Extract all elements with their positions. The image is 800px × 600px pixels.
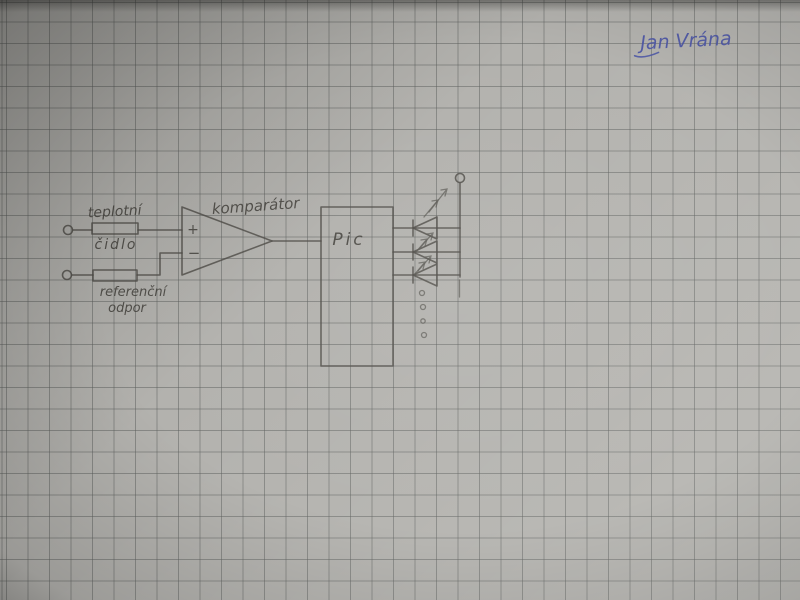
label-referencni: referenční [100, 285, 169, 300]
resistor-temperature-sensor [92, 223, 138, 234]
ellipsis-dot [421, 305, 426, 310]
comparator-plus-sign: + [187, 222, 199, 238]
input-terminal-1 [64, 226, 73, 235]
circuit-sketch: teplotní čidlo referenční odpor komparát… [0, 0, 800, 600]
label-cidlo: čidlo [95, 237, 138, 253]
label-komparator: komparátor [211, 194, 301, 218]
photo-of-graph-paper: teplotní čidlo referenční odpor komparát… [0, 0, 800, 600]
led-1-emission-arrow-b [424, 200, 438, 217]
comparator-minus-sign: − [188, 244, 201, 262]
led-1 [413, 189, 447, 239]
label-pic: Pic [332, 230, 365, 250]
wire-resistor2-to-comparator-minus [137, 253, 182, 275]
label-odpor: odpor [108, 301, 147, 316]
signature: Jan Vrána [633, 28, 732, 58]
ellipsis-dot [421, 319, 425, 323]
led-3-emission-arrow-b [414, 262, 425, 275]
signature-text: Jan Vrána [636, 28, 732, 55]
resistor-reference [93, 270, 137, 281]
label-teplotni: teplotní [88, 203, 145, 222]
ellipsis-dot [420, 291, 425, 296]
comparator-triangle [182, 207, 272, 275]
input-terminal-2 [63, 271, 72, 280]
ellipsis-dot [422, 333, 427, 338]
led-2-emission-arrow-b [416, 239, 427, 252]
supply-terminal [456, 174, 465, 183]
more-leds-ellipsis [420, 291, 427, 338]
